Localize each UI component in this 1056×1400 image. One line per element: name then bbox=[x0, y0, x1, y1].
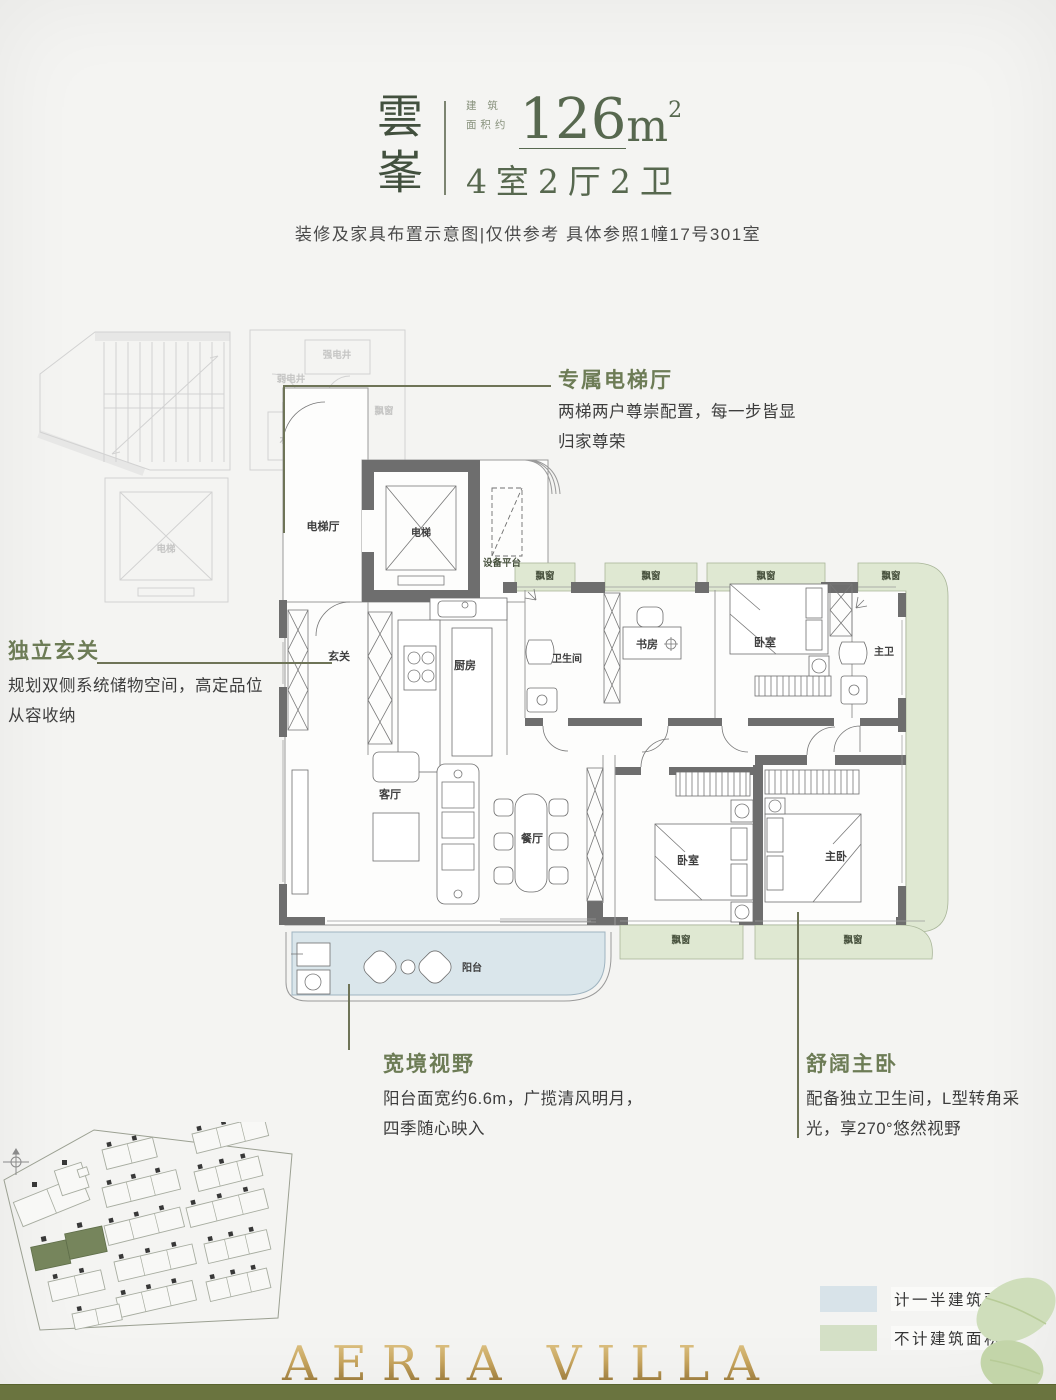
highlighted-building bbox=[28, 1218, 108, 1271]
callout-body-master: 配备独立卫生间，L型转角采光，享270°悠然视野 bbox=[806, 1085, 1048, 1144]
brand-name: 雲峯 bbox=[374, 92, 420, 204]
label-bay-5: 飘窗 bbox=[670, 934, 691, 946]
label-elevator: 电梯 bbox=[411, 526, 431, 539]
label-study: 书房 bbox=[636, 637, 658, 651]
label-kitchen: 厨房 bbox=[454, 658, 476, 672]
area-superscript: 2 bbox=[668, 98, 682, 123]
area-label-line2: 面积约 bbox=[466, 116, 510, 135]
area-unit: m bbox=[626, 105, 668, 149]
unit-layout: 4室2厅2卫 bbox=[466, 155, 682, 203]
callout-line-foyer bbox=[97, 662, 332, 664]
building-1 bbox=[13, 1160, 92, 1227]
label-weak-shaft: 弱电井 bbox=[277, 373, 306, 385]
callout-body-elevator: 两梯两户尊崇配置，每一步皆显归家尊荣 bbox=[558, 398, 800, 457]
label-bay-6: 飘窗 bbox=[842, 934, 863, 946]
area-label: 建 筑 面积约 bbox=[466, 97, 510, 135]
area-number: 126 bbox=[519, 93, 626, 149]
callout-title-foyer: 独立玄关 bbox=[8, 635, 100, 665]
callout-body-view: 阳台面宽约6.6m，广揽清风明月，四季随心映入 bbox=[383, 1085, 645, 1144]
callout-line-view bbox=[348, 984, 350, 1050]
label-bay-2: 飘窗 bbox=[640, 570, 661, 582]
dining-furniture: 餐厅 bbox=[494, 794, 568, 892]
title-row: 雲峯 建 筑 面积约 126 m 2 4室2厅2卫 bbox=[374, 92, 682, 204]
header-divider bbox=[444, 101, 446, 195]
label-elevator-faint: 电梯 bbox=[156, 543, 176, 555]
label-foyer: 玄关 bbox=[328, 649, 350, 663]
label-equipment: 设备平台 bbox=[483, 557, 522, 569]
callout-title-master: 舒阔主卧 bbox=[806, 1048, 898, 1078]
label-master-bedroom: 主卧 bbox=[825, 849, 847, 863]
balcony: 阳台 bbox=[286, 932, 611, 1001]
label-bay-1: 飘窗 bbox=[534, 570, 555, 582]
project-logo: AERIA VILLA bbox=[0, 1336, 1056, 1392]
label-bedroom-top: 卧室 bbox=[754, 635, 776, 649]
callout-line-elevator-v bbox=[283, 385, 285, 533]
label-bathroom: 卫生间 bbox=[552, 652, 582, 665]
header-right: 建 筑 面积约 126 m 2 4室2厅2卫 bbox=[466, 93, 682, 203]
label-living: 客厅 bbox=[378, 787, 401, 801]
label-bedroom-bottom: 卧室 bbox=[677, 853, 699, 867]
callout-line-master bbox=[797, 912, 799, 1138]
label-bay-faint: 飘窗 bbox=[373, 405, 394, 417]
area-label-line1: 建 筑 bbox=[466, 97, 510, 116]
area-row: 建 筑 面积约 126 m 2 bbox=[466, 93, 682, 149]
label-strong-shaft: 强电井 bbox=[323, 349, 352, 361]
poster-page: 雲峯 建 筑 面积约 126 m 2 4室2厅2卫 装修及家具布置示意图|仅供参… bbox=[0, 0, 1056, 1400]
master-bedroom: 主卧 bbox=[765, 770, 861, 902]
compass-icon bbox=[3, 1149, 29, 1175]
legend-swatch-blue bbox=[820, 1286, 877, 1312]
label-bay-4: 飘窗 bbox=[880, 570, 901, 582]
label-bay-3: 飘窗 bbox=[755, 570, 776, 582]
callout-body-foyer: 规划双侧系统储物空间，高定品位从容收纳 bbox=[8, 672, 266, 731]
callout-line-elevator-h bbox=[283, 385, 551, 387]
label-balcony: 阳台 bbox=[462, 961, 482, 974]
disclaimer-text: 装修及家具布置示意图|仅供参考 具体参照1幢17号301室 bbox=[295, 220, 761, 245]
header: 雲峯 建 筑 面积约 126 m 2 4室2厅2卫 装修及家具布置示意图|仅供参… bbox=[0, 92, 1056, 245]
site-plan bbox=[2, 1122, 298, 1334]
callout-title-view: 宽境视野 bbox=[383, 1048, 475, 1078]
label-dining: 餐厅 bbox=[520, 831, 543, 845]
label-master-bath: 主卫 bbox=[874, 645, 894, 658]
label-elevator-hall: 电梯厅 bbox=[307, 519, 340, 533]
callout-title-elevator: 专属电梯厅 bbox=[558, 364, 673, 394]
